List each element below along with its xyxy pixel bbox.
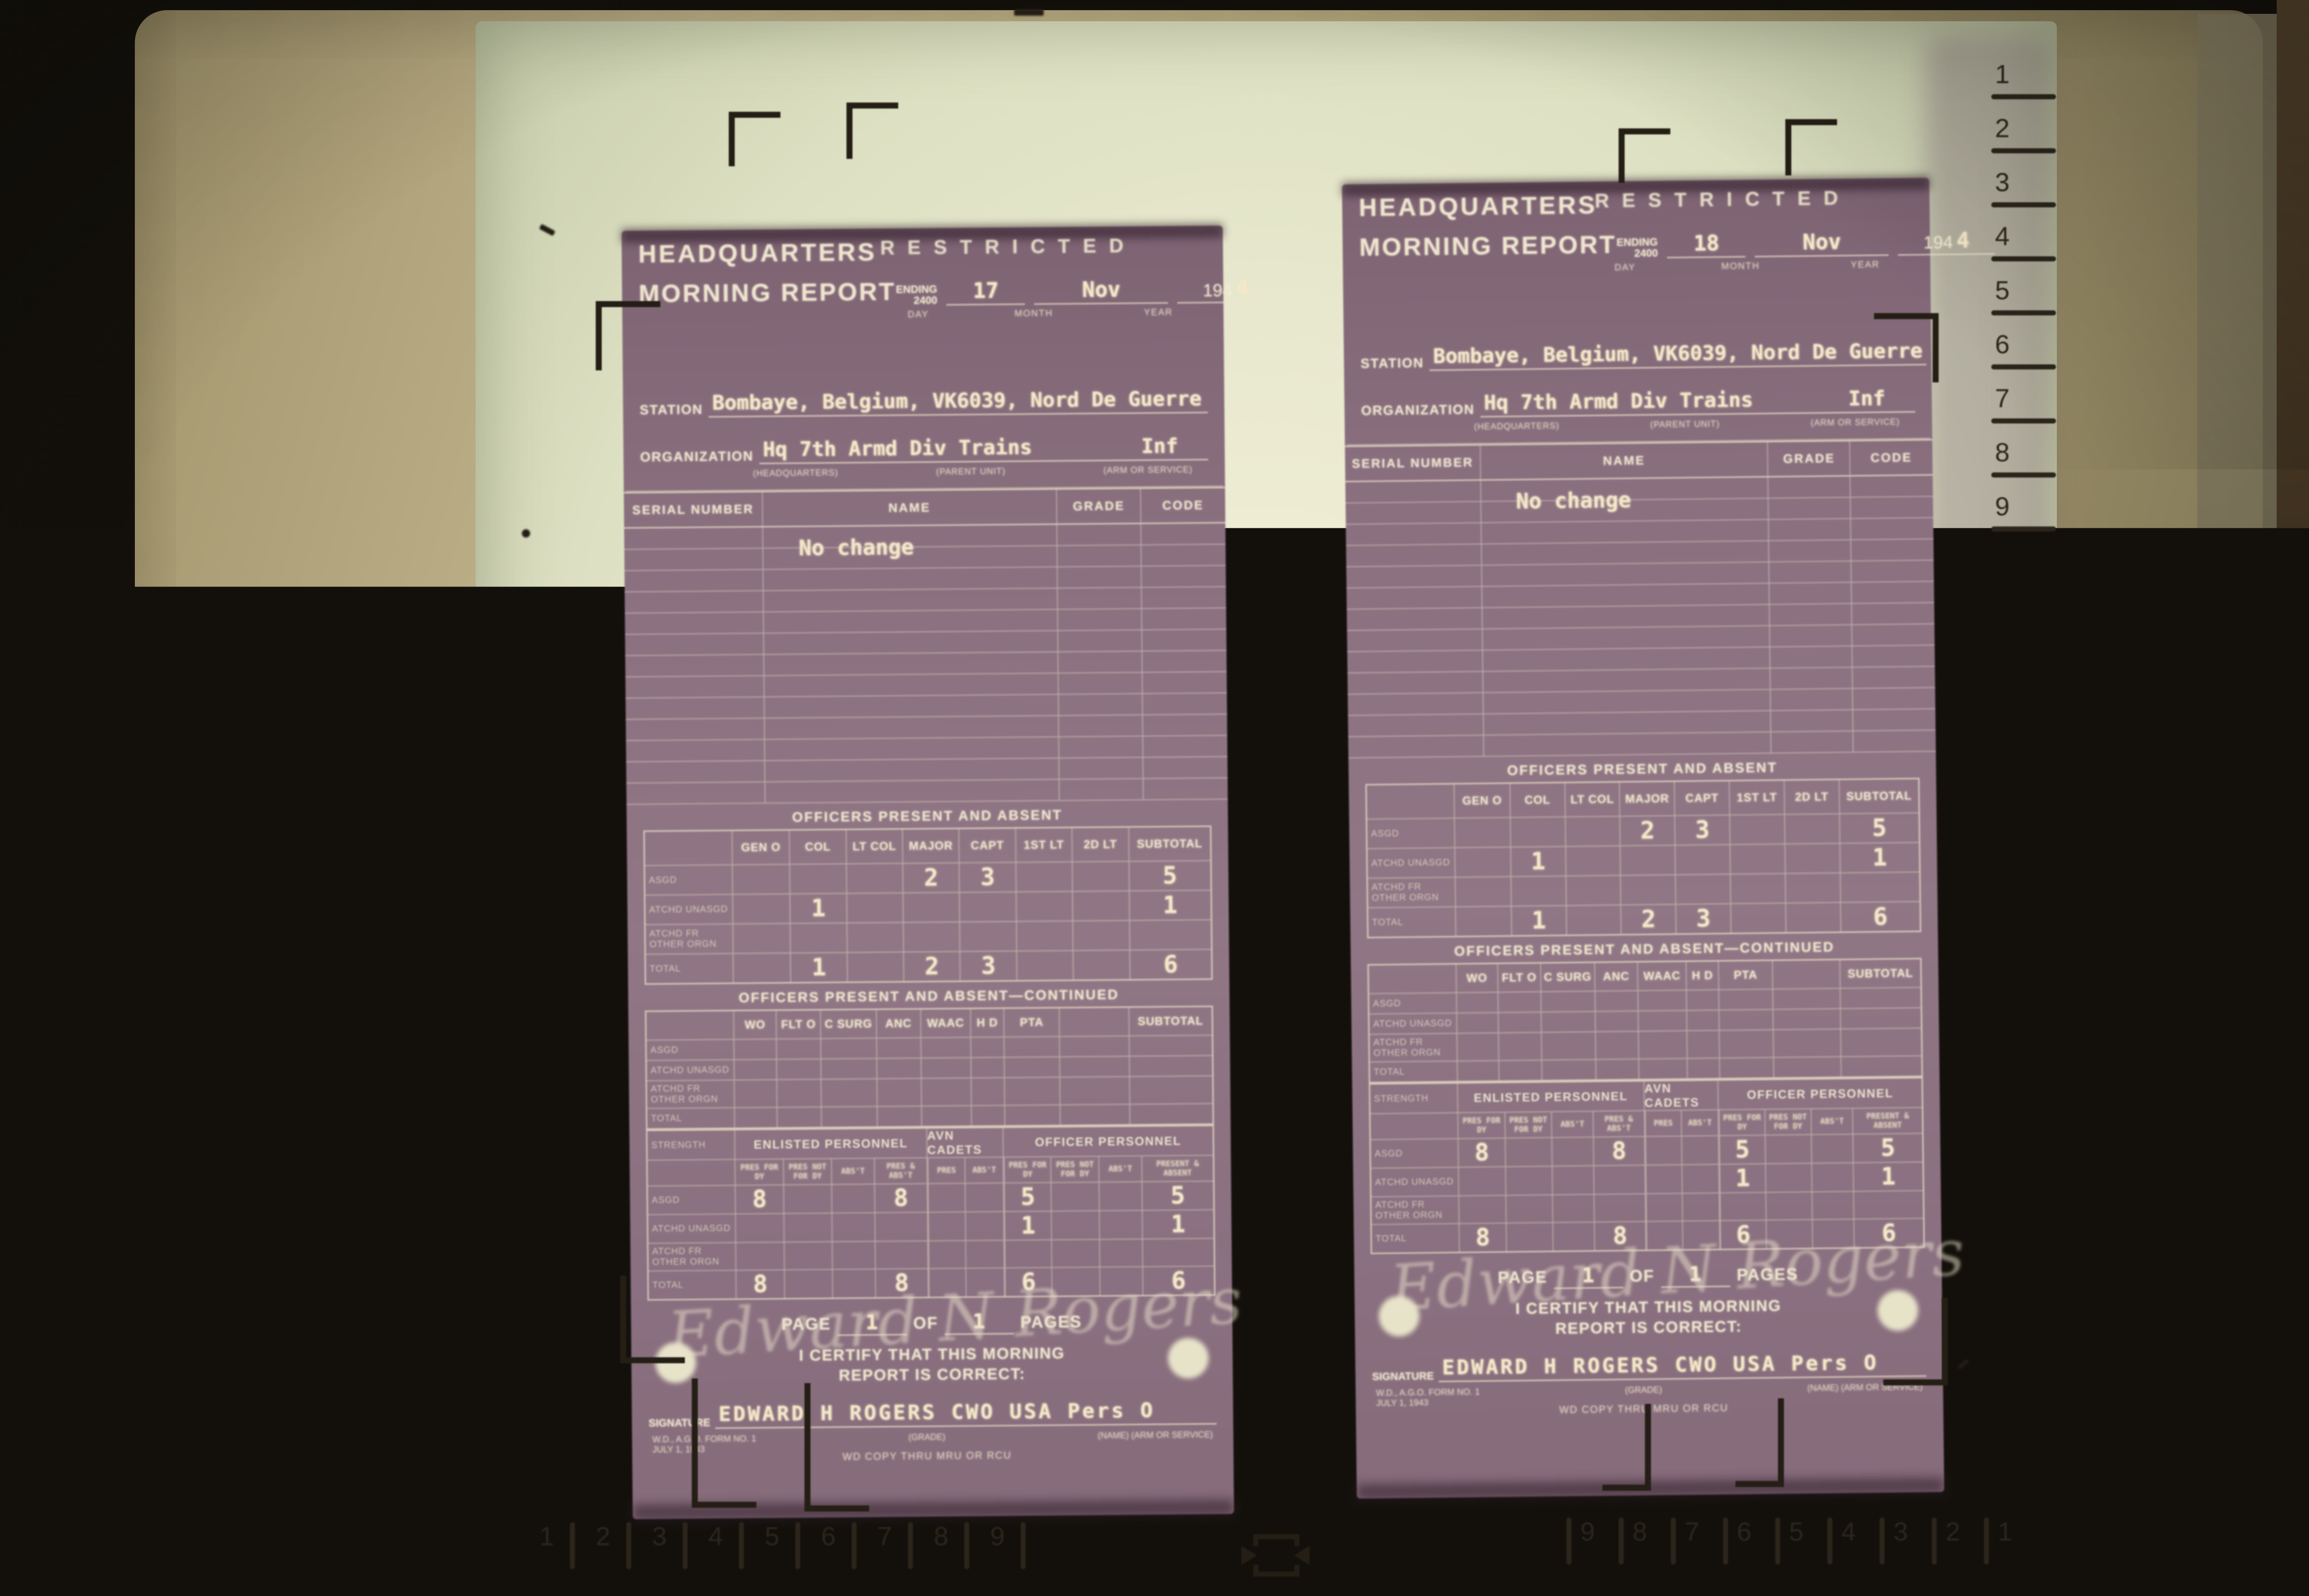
lgl-size-corner-icon <box>1602 1404 1651 1491</box>
table-cell <box>1051 1183 1099 1211</box>
arm-service-value: Inf <box>1111 434 1208 461</box>
dust-speck <box>1014 9 1044 16</box>
table-cell: 1 <box>1511 906 1566 935</box>
month-label: MONTH <box>967 308 1100 320</box>
officers-column-header: COL <box>1509 783 1565 817</box>
table-cell <box>874 1213 927 1241</box>
table-cell: 1 <box>1129 891 1211 920</box>
table-cell <box>1541 991 1595 1011</box>
organization-label: ORGANIZATION <box>640 449 754 465</box>
table-cell <box>971 1106 1004 1126</box>
strength-column-header: PRES <box>926 1158 965 1183</box>
table-cell <box>1681 1136 1718 1164</box>
officers-column-header: SUBTOTAL <box>1838 779 1918 813</box>
background-right <box>2277 0 2309 1596</box>
table-cell <box>1505 1195 1552 1222</box>
table-cell <box>1129 1036 1212 1056</box>
officers-continued-table: WOFLT OC SURGANCWAACH DPTASUBTOTAL ASGD … <box>645 1006 1214 1130</box>
table-cell <box>776 1059 821 1079</box>
ruler-tick: 2 <box>596 1520 652 1576</box>
table-cell <box>921 1078 971 1106</box>
table-cell <box>1620 875 1675 904</box>
table-cell: 2 <box>1620 816 1675 845</box>
table-cell <box>1644 1137 1681 1165</box>
ruler-tick: 6 <box>1989 329 2063 383</box>
form-header: RESTRICTED HEADQUARTERS MORNING REPORT E… <box>1342 178 1931 314</box>
strength-column-header: ABS'T <box>831 1159 874 1184</box>
ruler-tick: 1 <box>1989 59 2063 113</box>
officers-cont-column-header: PTA <box>1718 961 1772 989</box>
ruler-tick: 9 <box>990 1520 1046 1576</box>
table-cell: 5 <box>1142 1182 1214 1210</box>
table-cell <box>971 1078 1004 1106</box>
ruler-tick: 9 <box>1565 1516 1617 1571</box>
form-title-morning-report: MORNING REPORT <box>639 278 896 308</box>
table-cell <box>1457 1034 1498 1061</box>
film-centering-vertical-icon <box>1996 781 2038 852</box>
table-cell <box>1566 876 1621 905</box>
table-cell <box>926 1184 965 1212</box>
table-cell <box>1675 875 1730 904</box>
table-cell: 6 <box>1129 950 1211 979</box>
table-cell: 5 <box>1128 861 1210 891</box>
officers-column-header: 2D LT <box>1071 828 1128 861</box>
year-label: YEAR <box>1817 259 1914 271</box>
table-cell: 5 <box>1718 1136 1765 1164</box>
table-cell <box>1505 1167 1552 1195</box>
report-ending-date: ENDING 2400 18 Nov 194 4 <box>1616 227 1995 259</box>
legal-size-label: LGL <box>1612 1483 1697 1530</box>
table-cell <box>1593 1166 1644 1194</box>
table-cell <box>1015 892 1072 921</box>
avn-cadets-group-header: AVN CADETS <box>926 1128 1003 1157</box>
station-value: Bombaye, Belgium, VK6039, Nord De Guerre <box>708 387 1208 417</box>
morning-report-18-nov: RESTRICTED HEADQUARTERS MORNING REPORT E… <box>1342 178 1944 1499</box>
table-cell <box>1505 1138 1552 1166</box>
ending-time: 2400 <box>896 295 937 306</box>
roster-column-header: SERIAL NUMBER <box>1345 455 1481 471</box>
officers-column-header: MAJOR <box>902 829 959 863</box>
table-cell <box>1840 872 1920 902</box>
table-cell <box>1459 1167 1505 1195</box>
table-cell <box>831 1213 875 1241</box>
table-cell: 5 <box>1853 1134 1922 1162</box>
day-label: DAY <box>1586 262 1664 273</box>
table-cell <box>734 1040 776 1059</box>
table-cell <box>1840 988 1921 1008</box>
table-cell: 3 <box>959 863 1015 892</box>
table-cell: 1 <box>790 894 846 923</box>
officers-continued-table: WOFLT OC SURGANCWAACH DPTASUBTOTAL ASGD … <box>1367 958 1923 1083</box>
officers-cont-column-header: WO <box>734 1011 776 1039</box>
table-cell <box>1765 1192 1812 1220</box>
table-cell: 1 <box>1510 847 1566 876</box>
table-cell <box>1051 1240 1099 1267</box>
strength-column-header: PRES <box>1644 1111 1681 1136</box>
table-cell <box>1455 818 1510 847</box>
officers-cont-column-header: WO <box>1457 964 1497 992</box>
restricted-stamp: RESTRICTED <box>880 235 1136 260</box>
table-cell <box>1730 904 1786 933</box>
form-title-morning-report: MORNING REPORT <box>1359 230 1617 262</box>
microfilm-reader-photo: RESTRICTED HEADQUARTERS MORNING REPORT E… <box>0 0 2309 1596</box>
officers-cont-column-header: WAAC <box>920 1009 970 1037</box>
station-label: STATION <box>640 402 703 418</box>
table-cell <box>783 1185 831 1213</box>
ending-month-value: Nov <box>1755 229 1889 257</box>
officers-cont-column-header: FLT O <box>776 1010 821 1039</box>
ruler-tick: 6 <box>1986 1228 2060 1282</box>
ruler-tick: 4 <box>1825 1516 1878 1571</box>
ruler-tick: 5 <box>1986 1282 2060 1336</box>
table-cell <box>735 1080 777 1107</box>
dust-speck <box>522 529 530 538</box>
table-cell <box>846 893 903 922</box>
strength-column-header: ABS'T <box>1811 1109 1853 1134</box>
table-cell <box>1059 1077 1129 1104</box>
ruler-tick: 4 <box>1986 1336 2060 1390</box>
ruler-tick: 3 <box>1878 1516 1930 1571</box>
ruler-bottom-left: 123456789 <box>539 1520 1046 1576</box>
table-cell <box>1099 1239 1142 1267</box>
table-cell <box>1498 1033 1541 1060</box>
officers-table: GEN OCOLLT COLMAJORCAPT1ST LT2D LTSUBTOT… <box>1366 778 1922 938</box>
organization-line: ORGANIZATION Hq 7th Armd Div Trains Inf … <box>623 420 1225 480</box>
strength-column-header: PRES & ABS'T <box>1593 1111 1644 1137</box>
table-cell <box>1620 846 1675 875</box>
strength-column-header: PRES NOT FOR DY <box>1505 1112 1551 1137</box>
table-cell <box>1456 907 1511 936</box>
organization-line: ORGANIZATION Hq 7th Armd Div Trains Inf … <box>1344 373 1932 434</box>
table-cell <box>927 1212 965 1240</box>
signature-typed-value: EDWARD H ROGERS CWO USA Pers O <box>715 1398 1217 1429</box>
ruler-tick: 4 <box>708 1520 765 1576</box>
table-cell <box>734 954 791 983</box>
table-cell <box>1060 1105 1130 1124</box>
table-cell <box>876 1038 921 1058</box>
table-cell <box>1059 1036 1129 1056</box>
roster-header: SERIAL NUMBERNAMEGRADECODE <box>624 488 1226 528</box>
table-cell: 2 <box>903 952 960 981</box>
table-cell <box>1812 1192 1854 1219</box>
ending-label: ENDING <box>896 283 937 295</box>
table-cell <box>970 1038 1004 1058</box>
table-cell: 1 <box>1142 1210 1214 1239</box>
ruler-tick: 7 <box>877 1520 934 1576</box>
table-cell <box>1595 1011 1638 1031</box>
table-cell <box>1457 1061 1498 1081</box>
table-cell <box>876 1106 921 1126</box>
ruler-tick: 5 <box>1773 1516 1825 1571</box>
officers-column-header: 1ST LT <box>1729 781 1784 815</box>
table-cell <box>1729 845 1785 874</box>
ltr-size-corner-icon <box>1735 1398 1784 1487</box>
ruler-tick: 5 <box>1989 275 2063 329</box>
arm-service-value: Inf <box>1818 386 1916 413</box>
table-cell <box>784 1214 832 1242</box>
ruler-right-top: 123456789 <box>1989 59 2063 545</box>
table-cell <box>790 924 846 953</box>
officers-column-header: 1ST LT <box>1015 828 1072 862</box>
table-cell: 8 <box>1593 1137 1644 1165</box>
punch-hole <box>1168 1338 1209 1379</box>
ending-month-value: Nov <box>1034 276 1168 305</box>
table-cell <box>1594 991 1638 1011</box>
strength-column-header: ABS'T <box>1551 1112 1593 1137</box>
strength-column-header: PRES FOR DY <box>1458 1112 1505 1138</box>
roster-column-header: CODE <box>1850 450 1932 465</box>
table-cell <box>1457 993 1498 1013</box>
roster-header: SERIAL NUMBERNAMEGRADECODE <box>1345 441 1933 482</box>
officers-cont-column-header: ANC <box>1594 962 1638 991</box>
officers-cont-column-header: SUBTOTAL <box>1839 959 1921 988</box>
month-label: MONTH <box>1674 260 1807 272</box>
table-cell <box>1565 846 1620 876</box>
ruler-tick: 9 <box>1986 1066 2060 1120</box>
strength-column-header: ABS'T <box>1681 1110 1718 1136</box>
table-cell <box>1681 1165 1719 1193</box>
table-cell <box>1638 1031 1687 1058</box>
form-header: RESTRICTED HEADQUARTERS MORNING REPORT E… <box>622 225 1224 360</box>
table-cell: 2 <box>1620 905 1676 934</box>
roll-button[interactable]: Rol <box>146 1542 285 1596</box>
roster-entry-no-change: No change <box>798 534 914 560</box>
registration-corner-icon <box>1874 313 1939 382</box>
officers-cont-column-header: C SURG <box>820 1010 876 1038</box>
table-cell <box>1015 862 1072 891</box>
strength-column-header: PRES FOR DY <box>1003 1157 1051 1183</box>
table-cell <box>821 1059 876 1079</box>
ruler-tick: 6 <box>821 1520 877 1576</box>
table-cell: 1 <box>1839 843 1919 872</box>
table-cell <box>1016 921 1073 950</box>
officers-cont-column-header <box>1059 1008 1129 1036</box>
roster-column-header: NAME <box>1480 452 1768 470</box>
table-cell <box>821 1079 876 1106</box>
registration-corner-icon <box>692 1378 756 1508</box>
table-cell: 5 <box>1839 813 1919 843</box>
table-cell <box>1099 1182 1142 1210</box>
ruler-tick: 7 <box>1986 1174 2060 1228</box>
table-cell <box>1718 990 1772 1010</box>
table-cell <box>1772 989 1840 1009</box>
officers-column-header: LT COL <box>1564 783 1620 816</box>
table-cell <box>927 1241 966 1268</box>
table-cell: 8 <box>874 1184 927 1212</box>
ruler-tick: 7 <box>1989 383 2063 437</box>
signature-typed-value: EDWARD H ROGERS CWO USA Pers O <box>1438 1350 1926 1382</box>
table-cell <box>959 892 1016 921</box>
table-cell <box>876 1058 921 1078</box>
roster-entry-no-change: No change <box>1516 487 1631 514</box>
table-cell <box>902 893 959 922</box>
table-cell <box>1497 992 1541 1012</box>
table-cell <box>1016 951 1073 980</box>
officers-column-header: GEN O <box>732 831 789 864</box>
headquarters-small-label: (HEADQUARTERS) <box>753 468 838 479</box>
ruler-tick: 4 <box>1989 221 2063 275</box>
table-cell <box>1811 1163 1853 1191</box>
table-cell <box>1072 921 1129 950</box>
officers-table: GEN OCOLLT COLMAJORCAPT1ST LT2D LTSUBTOT… <box>643 826 1213 985</box>
ruler-tick: 3 <box>1986 1390 2060 1444</box>
day-label: DAY <box>879 309 957 320</box>
table-cell <box>1004 1058 1060 1077</box>
ruler-tick: 2 <box>1930 1516 1982 1571</box>
ruler-right-bottom: 987654321 <box>1986 1066 2060 1552</box>
officers-cont-column-header: SUBTOTAL <box>1128 1007 1212 1036</box>
table-cell <box>1003 1037 1059 1057</box>
table-cell <box>1644 1194 1682 1221</box>
officers-cont-column-header: WAAC <box>1637 962 1686 990</box>
roster-column-header: GRADE <box>1768 451 1850 466</box>
roster-column-header: CODE <box>1141 498 1226 513</box>
table-cell <box>733 895 790 924</box>
table-cell <box>1565 817 1620 846</box>
table-cell <box>1459 1196 1506 1223</box>
strength-column-header: ABS'T <box>1098 1156 1142 1182</box>
officers-cont-column-header: H D <box>1686 961 1718 990</box>
table-cell <box>1099 1211 1142 1239</box>
table-cell <box>1811 1135 1853 1163</box>
table-cell <box>1552 1166 1594 1194</box>
strength-column-header: PRES FOR DY <box>735 1160 783 1185</box>
enlisted-group-header: ENLISTED PERSONNEL <box>735 1129 926 1159</box>
strength-column-header: PRES NOT FOR DY <box>1764 1109 1811 1135</box>
table-cell <box>1498 1013 1541 1033</box>
officers-cont-column-header: C SURG <box>1540 963 1594 991</box>
officers-cont-column-header: ANC <box>876 1010 920 1038</box>
table-cell: 1 <box>1853 1162 1922 1191</box>
table-cell <box>1686 1010 1719 1030</box>
table-cell <box>776 1080 821 1107</box>
ending-day-value: 17 <box>946 278 1025 305</box>
table-cell <box>1644 1165 1682 1193</box>
table-cell <box>735 1108 777 1128</box>
strength-column-header: ABS'T <box>965 1158 1003 1183</box>
ruler-tick: 2 <box>1989 113 2063 167</box>
table-cell <box>875 1241 927 1269</box>
roster-column-header: NAME <box>762 500 1057 517</box>
ruler-tick: 1 <box>1982 1516 2034 1571</box>
registration-corner-icon <box>846 103 898 159</box>
ruler-tick: 3 <box>1989 167 2063 221</box>
table-cell <box>920 1058 971 1078</box>
officers-column-header: COL <box>789 830 846 864</box>
ruler-tick: 9 <box>1989 491 2063 545</box>
officers-column-header: MAJOR <box>1619 782 1674 816</box>
table-cell <box>1638 991 1686 1010</box>
table-cell <box>789 864 846 894</box>
table-cell <box>1772 1009 1840 1029</box>
roster-table: SERIAL NUMBERNAMEGRADECODE No change <box>1345 439 1936 758</box>
table-cell <box>1552 1195 1594 1222</box>
table-cell <box>1765 1164 1812 1192</box>
table-cell: 1 <box>1003 1212 1051 1240</box>
table-cell <box>736 1214 784 1242</box>
officers-column-header: CAPT <box>1674 781 1729 815</box>
table-cell: 1 <box>1718 1164 1765 1192</box>
table-cell <box>1498 1061 1541 1081</box>
table-cell: 2 <box>902 863 959 892</box>
table-cell <box>821 1107 877 1127</box>
table-cell: 3 <box>1675 904 1731 933</box>
table-cell <box>733 924 790 953</box>
table-cell <box>1784 814 1839 843</box>
registration-corner-icon <box>1883 1298 1948 1385</box>
ruler-tick: 8 <box>934 1520 990 1576</box>
ruler-tick: 1 <box>539 1520 596 1576</box>
table-cell <box>1455 847 1511 877</box>
table-cell <box>1051 1211 1099 1239</box>
officers-cont-column-header <box>1772 960 1840 989</box>
roster-table: SERIAL NUMBERNAMEGRADECODE No change <box>624 487 1228 804</box>
table-cell: 6 <box>1840 902 1920 931</box>
ending-label: ENDING <box>1616 236 1658 248</box>
table-cell <box>1566 906 1621 935</box>
ruler-tick: 2 <box>1986 1444 2060 1498</box>
table-cell <box>1004 1078 1060 1105</box>
table-cell <box>965 1212 1003 1240</box>
officers-column-header: SUBTOTAL <box>1128 827 1210 861</box>
strength-column-header: PRES & ABS'T <box>874 1158 926 1184</box>
registration-corner-icon <box>1785 119 1837 175</box>
table-cell <box>876 1079 921 1106</box>
headquarters-small-label: (HEADQUARTERS) <box>1474 421 1559 432</box>
table-cell <box>1773 1057 1840 1077</box>
avn-cadets-group-header: AVN CADETS <box>1644 1081 1718 1110</box>
table-cell <box>1541 1012 1595 1032</box>
table-cell <box>1687 1058 1720 1078</box>
station-line: STATION Bombaye, Belgium, VK6039, Nord D… <box>1343 323 1931 372</box>
table-cell <box>735 1060 777 1080</box>
officers-column-header: CAPT <box>959 828 1015 862</box>
ruler-tick: 3 <box>652 1520 708 1576</box>
table-cell <box>777 1107 822 1127</box>
report-ending-date: ENDING 2400 17 Nov 194 4 <box>896 275 1275 306</box>
table-cell <box>1686 1031 1719 1058</box>
table-cell <box>1638 1059 1687 1079</box>
registration-corner-icon <box>804 1383 869 1511</box>
table-cell <box>1129 1104 1213 1124</box>
organization-value: Hq 7th Armd Div Trains <box>759 435 1112 465</box>
table-cell <box>1142 1239 1214 1266</box>
restricted-stamp: RESTRICTED <box>1595 187 1851 212</box>
table-cell: 8 <box>736 1185 784 1214</box>
table-cell: 3 <box>1674 816 1730 845</box>
table-cell <box>1129 920 1211 950</box>
table-cell: 5 <box>1003 1183 1051 1211</box>
table-cell <box>1510 817 1565 846</box>
ruler-tick: 6 <box>1721 1516 1773 1571</box>
table-cell <box>846 864 903 893</box>
table-cell <box>1765 1135 1811 1163</box>
parent-unit-small-label: (PARENT UNIT) <box>936 466 1006 477</box>
table-cell <box>832 1242 875 1269</box>
table-cell <box>1785 903 1841 932</box>
strength-column-header: PRESENT & ABSENT <box>1141 1156 1213 1181</box>
table-cell <box>1840 1028 1922 1056</box>
table-cell <box>1595 1032 1638 1059</box>
strength-column-header: PRES NOT FOR DY <box>1051 1157 1099 1182</box>
table-cell <box>921 1106 971 1126</box>
officer-group-header: OFFICER PERSONNEL <box>1003 1126 1213 1157</box>
table-cell <box>1686 990 1719 1010</box>
ending-year-value: 194 4 <box>1898 227 1995 255</box>
table-cell <box>1840 1008 1921 1028</box>
table-cell <box>1730 874 1785 903</box>
table-cell <box>1674 845 1730 874</box>
